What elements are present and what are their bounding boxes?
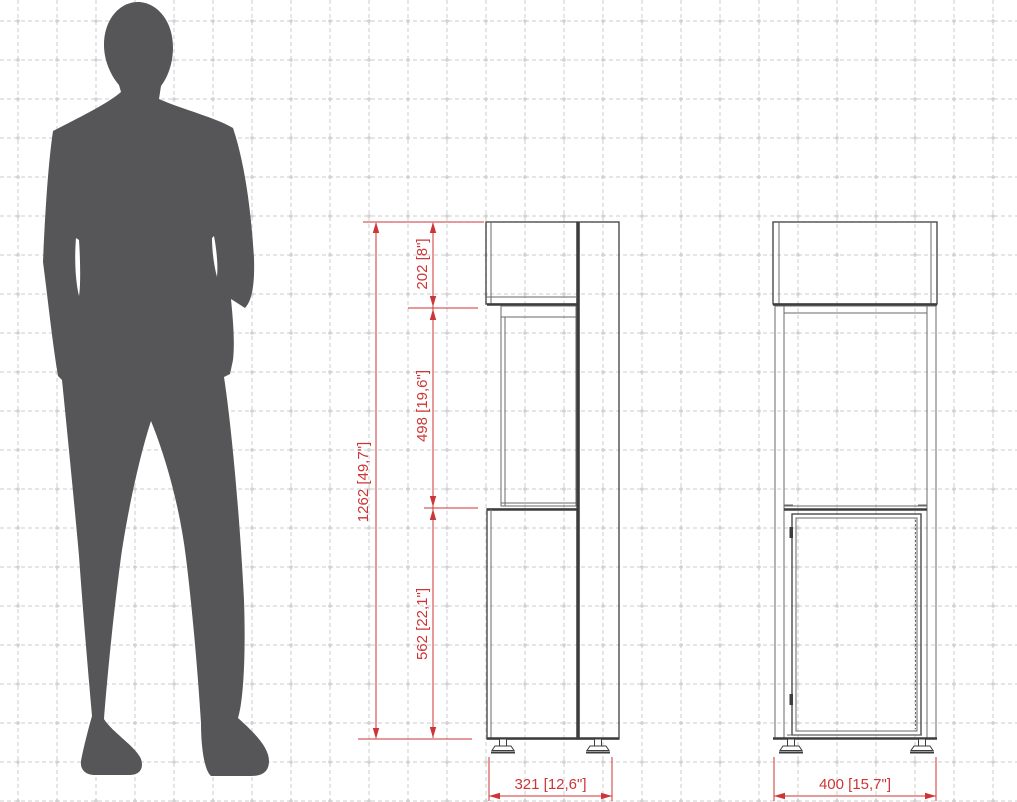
human-silhouette-body <box>43 2 269 776</box>
middle-section-label: 498 [19,6"] <box>414 370 431 442</box>
side-view-drawing <box>486 222 619 753</box>
front-door <box>792 514 921 735</box>
human-silhouette <box>43 2 269 776</box>
front-right-foot <box>910 739 934 753</box>
front-left-foot <box>779 739 803 753</box>
side-left-foot <box>491 739 515 753</box>
technical-drawing-canvas: 1262 [49,7"] 202 [8"] 498 [19,6"] 562 [2… <box>0 0 1017 802</box>
bottom-section-label: 562 [22,1"] <box>414 588 431 660</box>
dimension-annotations: 1262 [49,7"] 202 [8"] 498 [19,6"] 562 [2… <box>355 222 936 801</box>
side-back-column <box>577 222 619 739</box>
top-section-label: 202 [8"] <box>414 238 431 289</box>
front-left-frame <box>775 306 784 739</box>
door-hinge-bottom <box>790 694 794 705</box>
front-glass-section <box>784 306 927 506</box>
door-hinge-top <box>790 527 794 538</box>
side-right-foot <box>586 739 610 753</box>
front-right-frame <box>927 306 936 739</box>
front-width-label: 400 [15,7"] <box>819 776 891 793</box>
side-depth-label: 321 [12,6"] <box>514 776 586 793</box>
overall-height-label: 1262 [49,7"] <box>355 442 372 522</box>
